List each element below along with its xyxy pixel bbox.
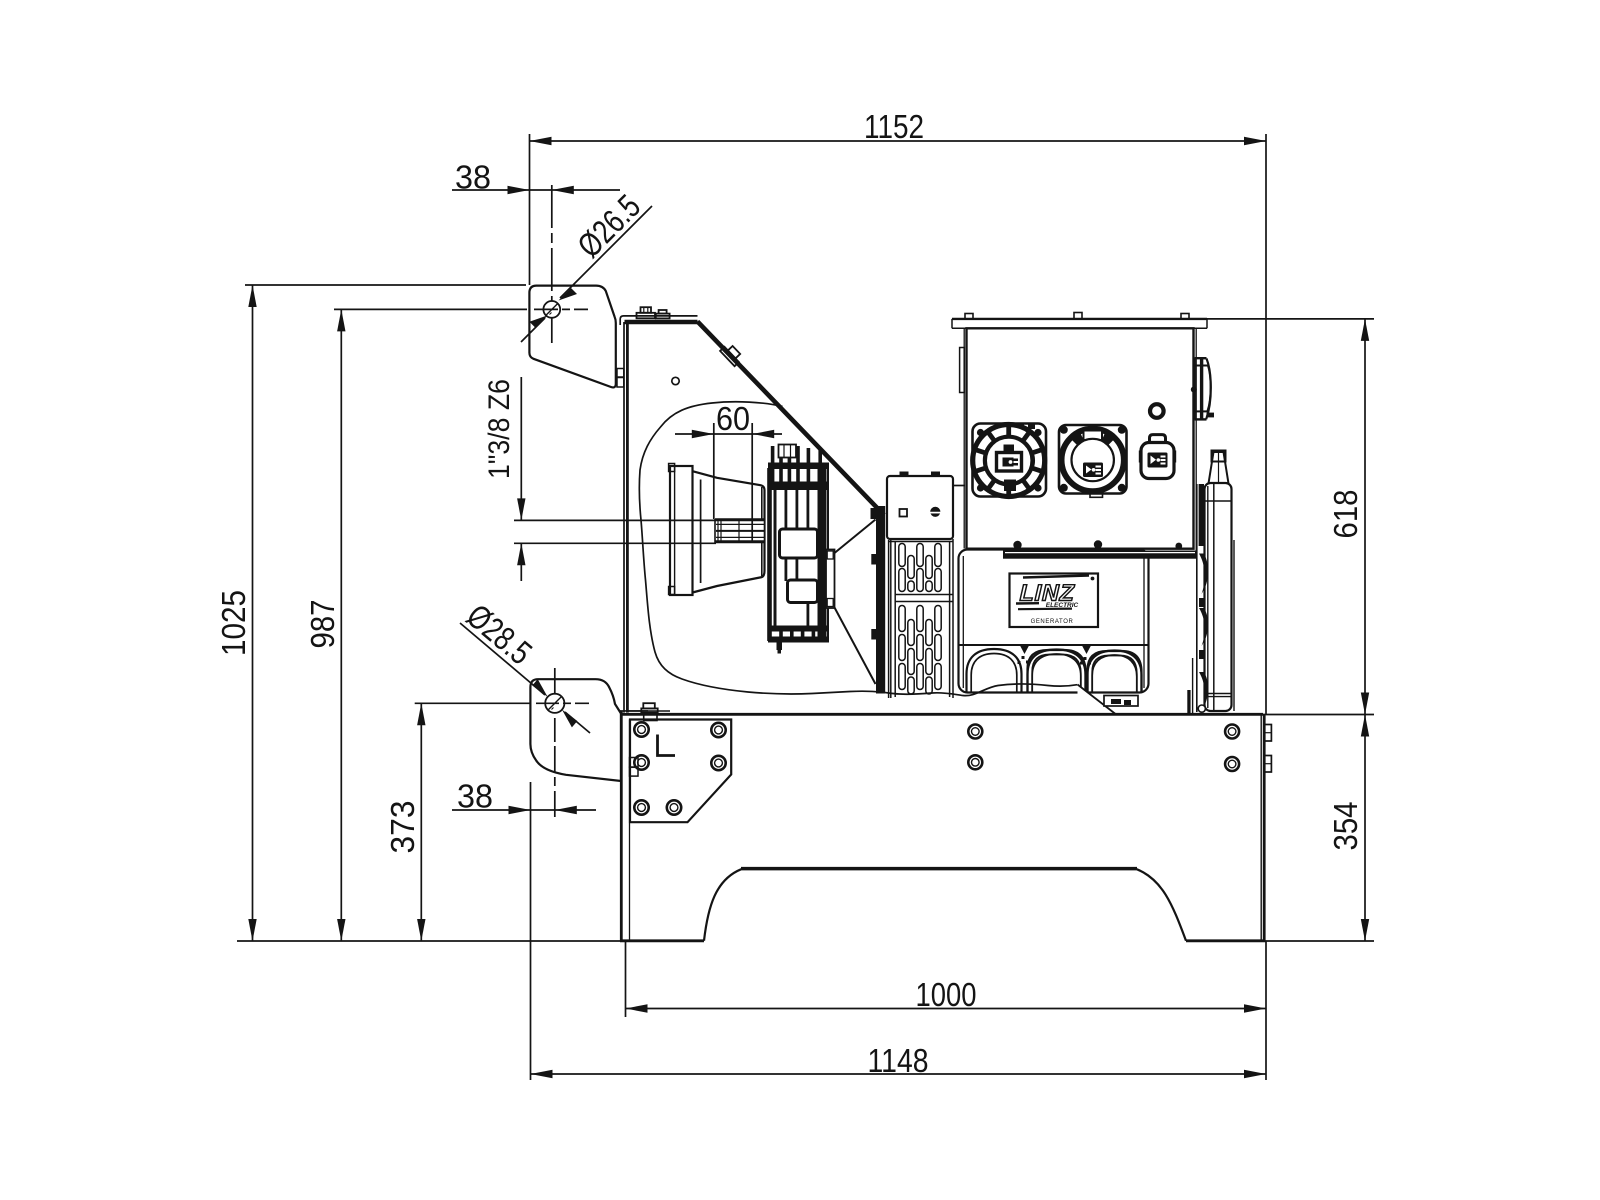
svg-text:60: 60 (716, 401, 750, 438)
svg-text:GENERATOR: GENERATOR (1031, 619, 1074, 625)
svg-text:1000: 1000 (916, 977, 977, 1014)
svg-text:1152: 1152 (864, 109, 924, 146)
svg-text:38: 38 (455, 160, 491, 197)
svg-text:618: 618 (1328, 490, 1365, 539)
svg-text:987: 987 (305, 600, 342, 649)
svg-text:ELECTRIC: ELECTRIC (1046, 602, 1079, 609)
svg-text:1148: 1148 (868, 1043, 929, 1080)
svg-text:38: 38 (457, 779, 493, 816)
svg-text:1"3/8 Z6: 1"3/8 Z6 (483, 379, 516, 479)
svg-text:354: 354 (1328, 802, 1365, 851)
svg-text:1025: 1025 (216, 590, 253, 656)
svg-text:373: 373 (385, 801, 422, 854)
